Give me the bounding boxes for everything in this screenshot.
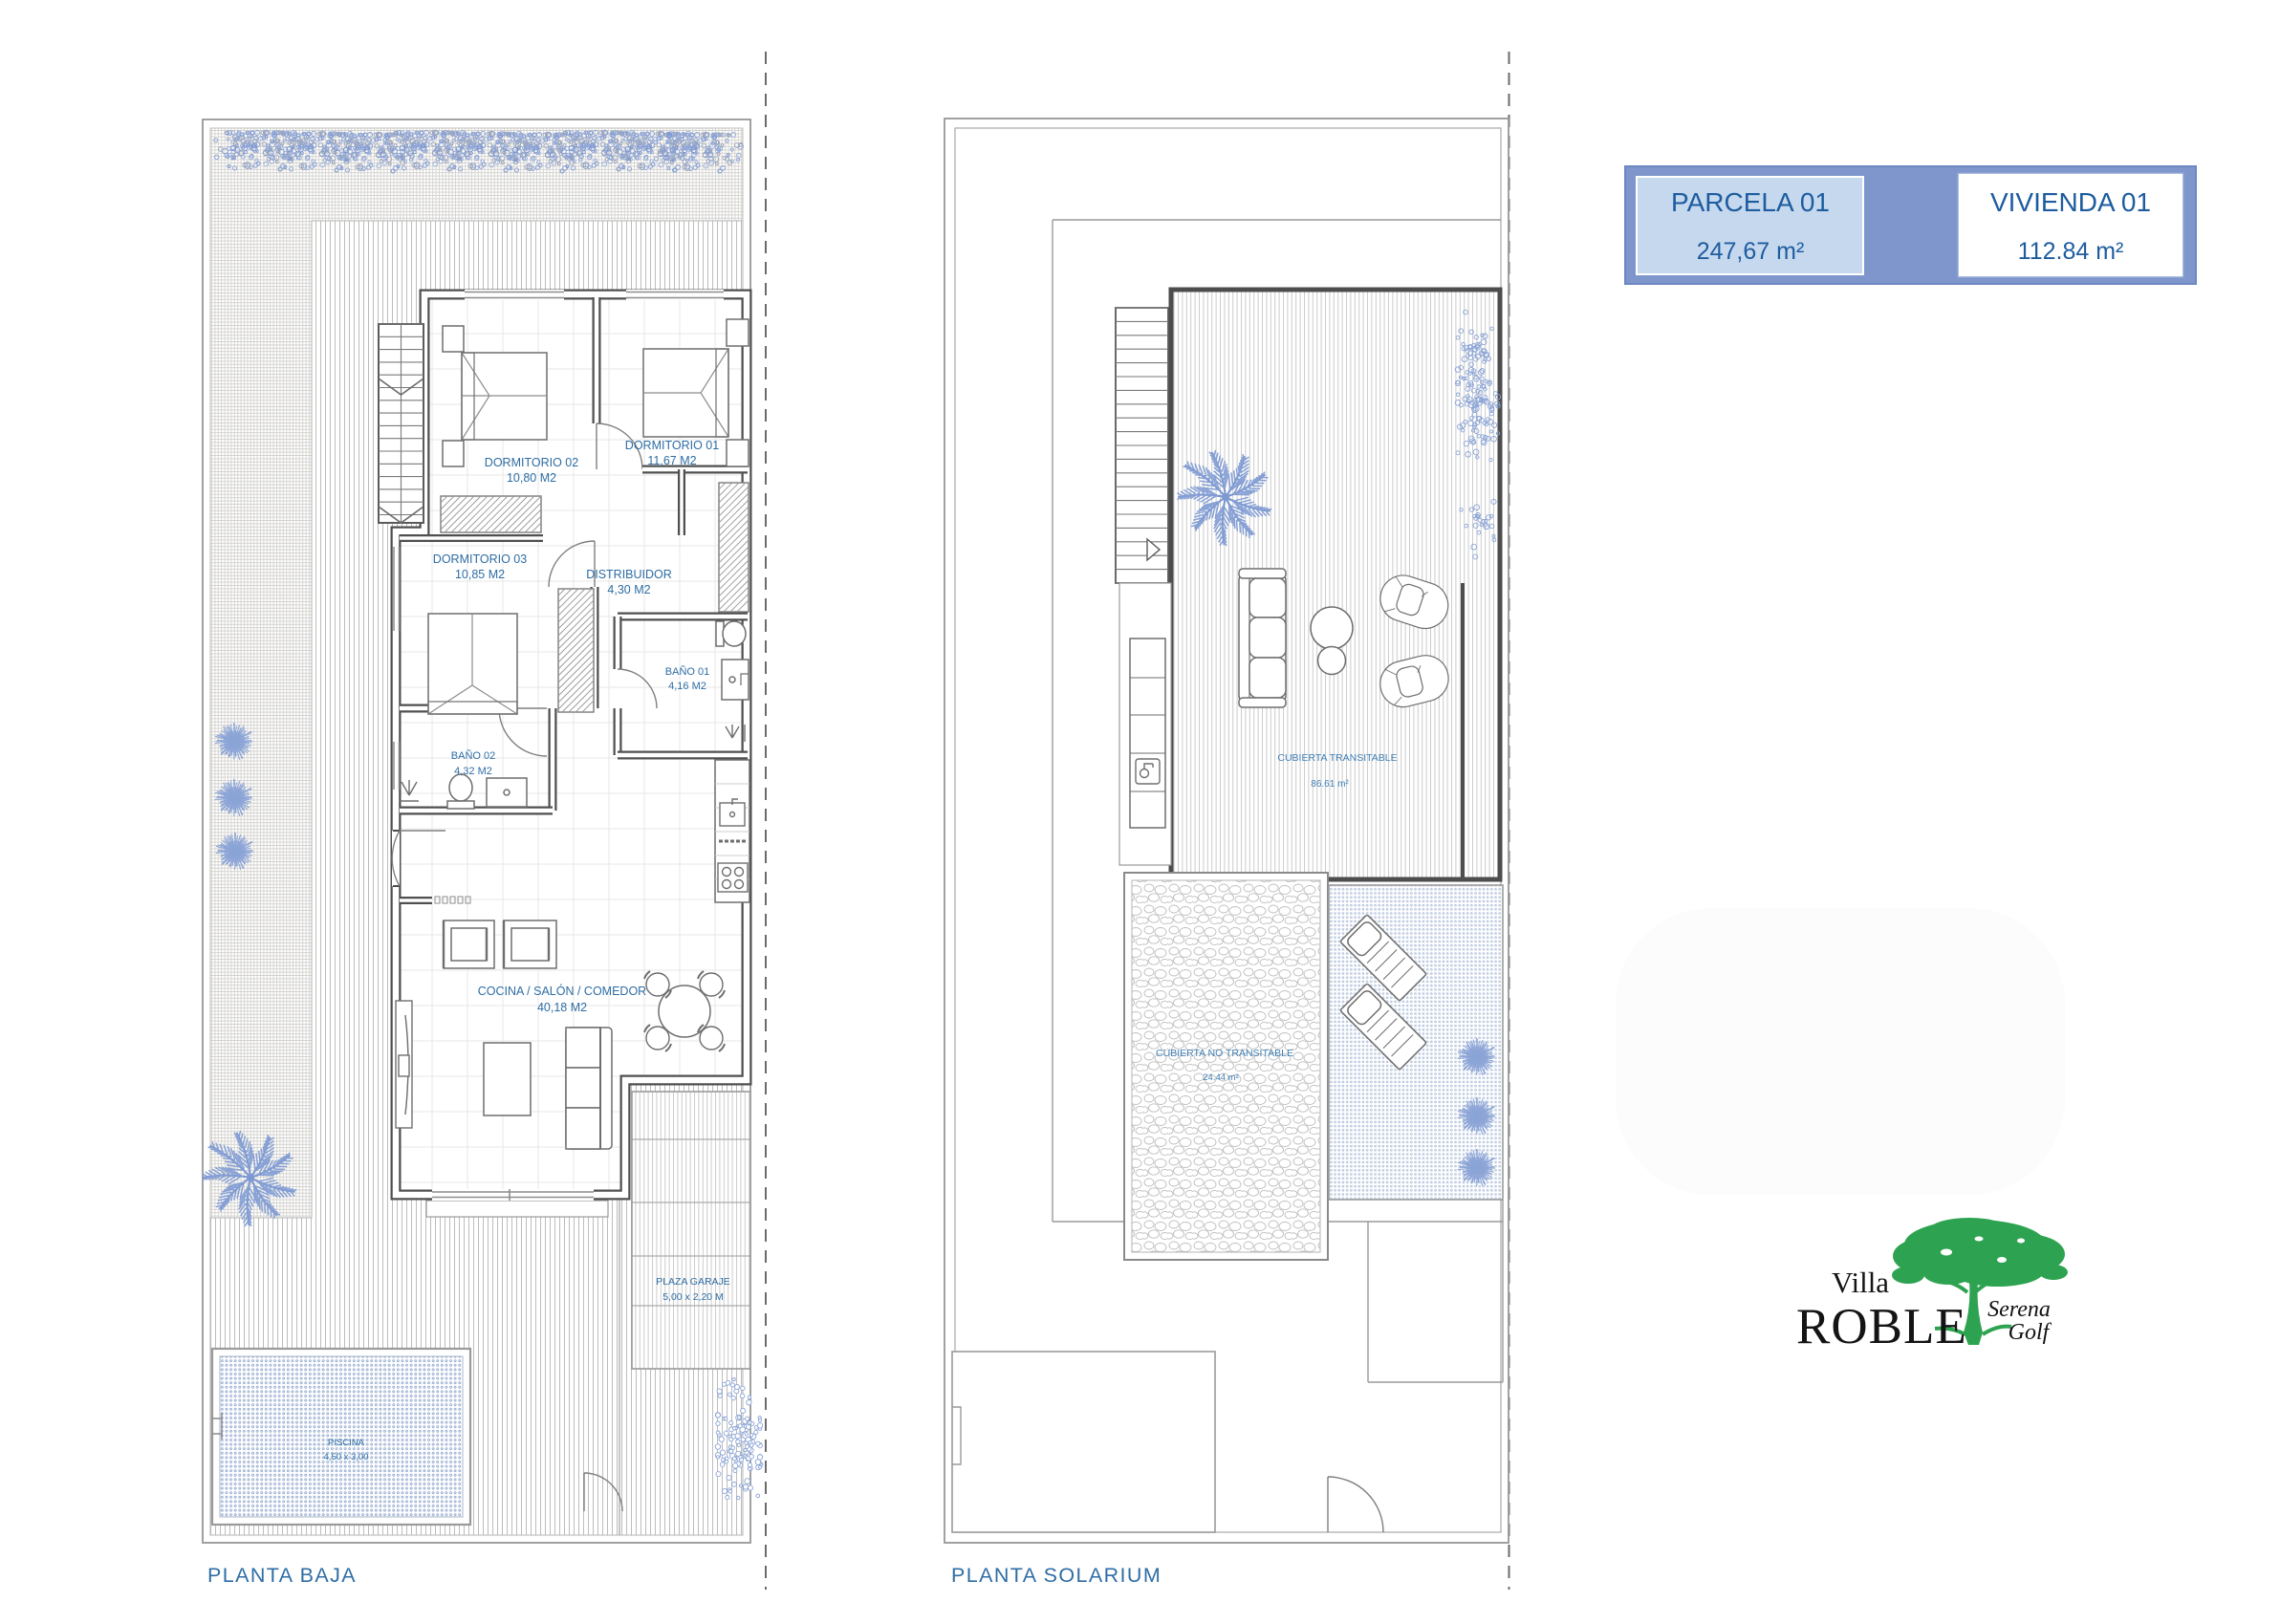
svg-text:247,67 m²: 247,67 m² — [1697, 238, 1805, 265]
svg-text:112.84 m²: 112.84 m² — [2018, 238, 2124, 265]
svg-text:PLAZA GARAJE: PLAZA GARAJE — [656, 1276, 730, 1288]
svg-text:DORMITORIO 03: DORMITORIO 03 — [433, 552, 527, 566]
svg-text:Serena: Serena — [1987, 1297, 2051, 1322]
svg-text:86.61 m²: 86.61 m² — [1311, 779, 1349, 790]
svg-text:CUBIERTA TRANSITABLE: CUBIERTA TRANSITABLE — [1277, 752, 1397, 764]
svg-text:PARCELA 01: PARCELA 01 — [1671, 187, 1830, 217]
svg-text:BAÑO 02: BAÑO 02 — [451, 749, 495, 762]
svg-text:CUBIERTA NO TRANSITABLE: CUBIERTA NO TRANSITABLE — [1156, 1048, 1293, 1059]
svg-text:BAÑO 01: BAÑO 01 — [665, 665, 709, 678]
svg-text:ROBLE: ROBLE — [1796, 1299, 1967, 1354]
svg-text:DORMITORIO 02: DORMITORIO 02 — [485, 456, 578, 469]
svg-text:Villa: Villa — [1832, 1266, 1889, 1299]
svg-text:4,30 M2: 4,30 M2 — [607, 583, 650, 596]
svg-text:10,80 M2: 10,80 M2 — [507, 471, 556, 485]
svg-text:4,50 x 3,00: 4,50 x 3,00 — [323, 1452, 368, 1462]
svg-text:PLANTA SOLARIUM: PLANTA SOLARIUM — [951, 1564, 1162, 1587]
svg-text:DISTRIBUIDOR: DISTRIBUIDOR — [586, 568, 672, 581]
svg-text:DORMITORIO 01: DORMITORIO 01 — [625, 439, 719, 452]
svg-text:Golf: Golf — [2009, 1320, 2052, 1345]
svg-text:VIVIENDA 01: VIVIENDA 01 — [1990, 187, 2151, 217]
svg-text:4,16 M2: 4,16 M2 — [668, 681, 706, 692]
svg-text:10,85 M2: 10,85 M2 — [455, 568, 505, 581]
svg-text:PISCINA: PISCINA — [328, 1438, 365, 1448]
svg-text:24.44 m²: 24.44 m² — [1203, 1072, 1239, 1083]
svg-text:40,18 M2: 40,18 M2 — [537, 1001, 587, 1014]
svg-text:11,67 M2: 11,67 M2 — [647, 454, 696, 467]
svg-text:5,00 x 2,20 M: 5,00 x 2,20 M — [662, 1291, 724, 1303]
svg-text:PLANTA BAJA: PLANTA BAJA — [207, 1564, 357, 1587]
svg-text:COCINA / SALÓN / COMEDOR: COCINA / SALÓN / COMEDOR — [478, 984, 646, 998]
svg-text:4,32 M2: 4,32 M2 — [454, 766, 492, 777]
